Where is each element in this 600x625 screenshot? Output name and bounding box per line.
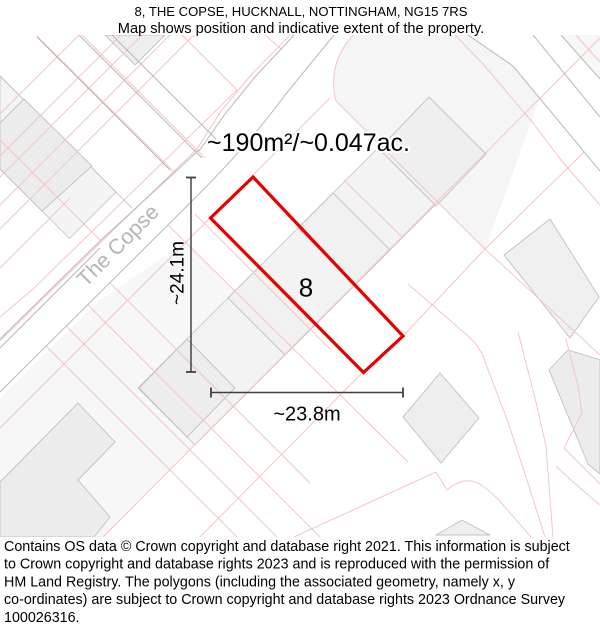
svg-text:Contains OS data © Crown copyr: Contains OS data © Crown copyright and d… — [4, 539, 570, 555]
svg-text:~24.1m: ~24.1m — [168, 241, 189, 305]
svg-text:100026316.: 100026316. — [4, 610, 80, 625]
svg-text:8, THE COPSE, HUCKNALL, NOTTIN: 8, THE COPSE, HUCKNALL, NOTTINGHAM, NG15… — [135, 4, 468, 19]
svg-text:~190m²/~0.047ac.: ~190m²/~0.047ac. — [207, 129, 410, 157]
svg-text:to Crown copyright and databas: to Crown copyright and database rights 2… — [4, 557, 549, 573]
svg-text:8: 8 — [299, 273, 313, 303]
svg-text:Map shows position and indicat: Map shows position and indicative extent… — [118, 21, 484, 37]
svg-text:~23.8m: ~23.8m — [273, 404, 340, 426]
svg-text:co-ordinates) are subject to C: co-ordinates) are subject to Crown copyr… — [4, 592, 566, 608]
svg-text:HM Land Registry. The polygons: HM Land Registry. The polygons (includin… — [4, 574, 516, 590]
